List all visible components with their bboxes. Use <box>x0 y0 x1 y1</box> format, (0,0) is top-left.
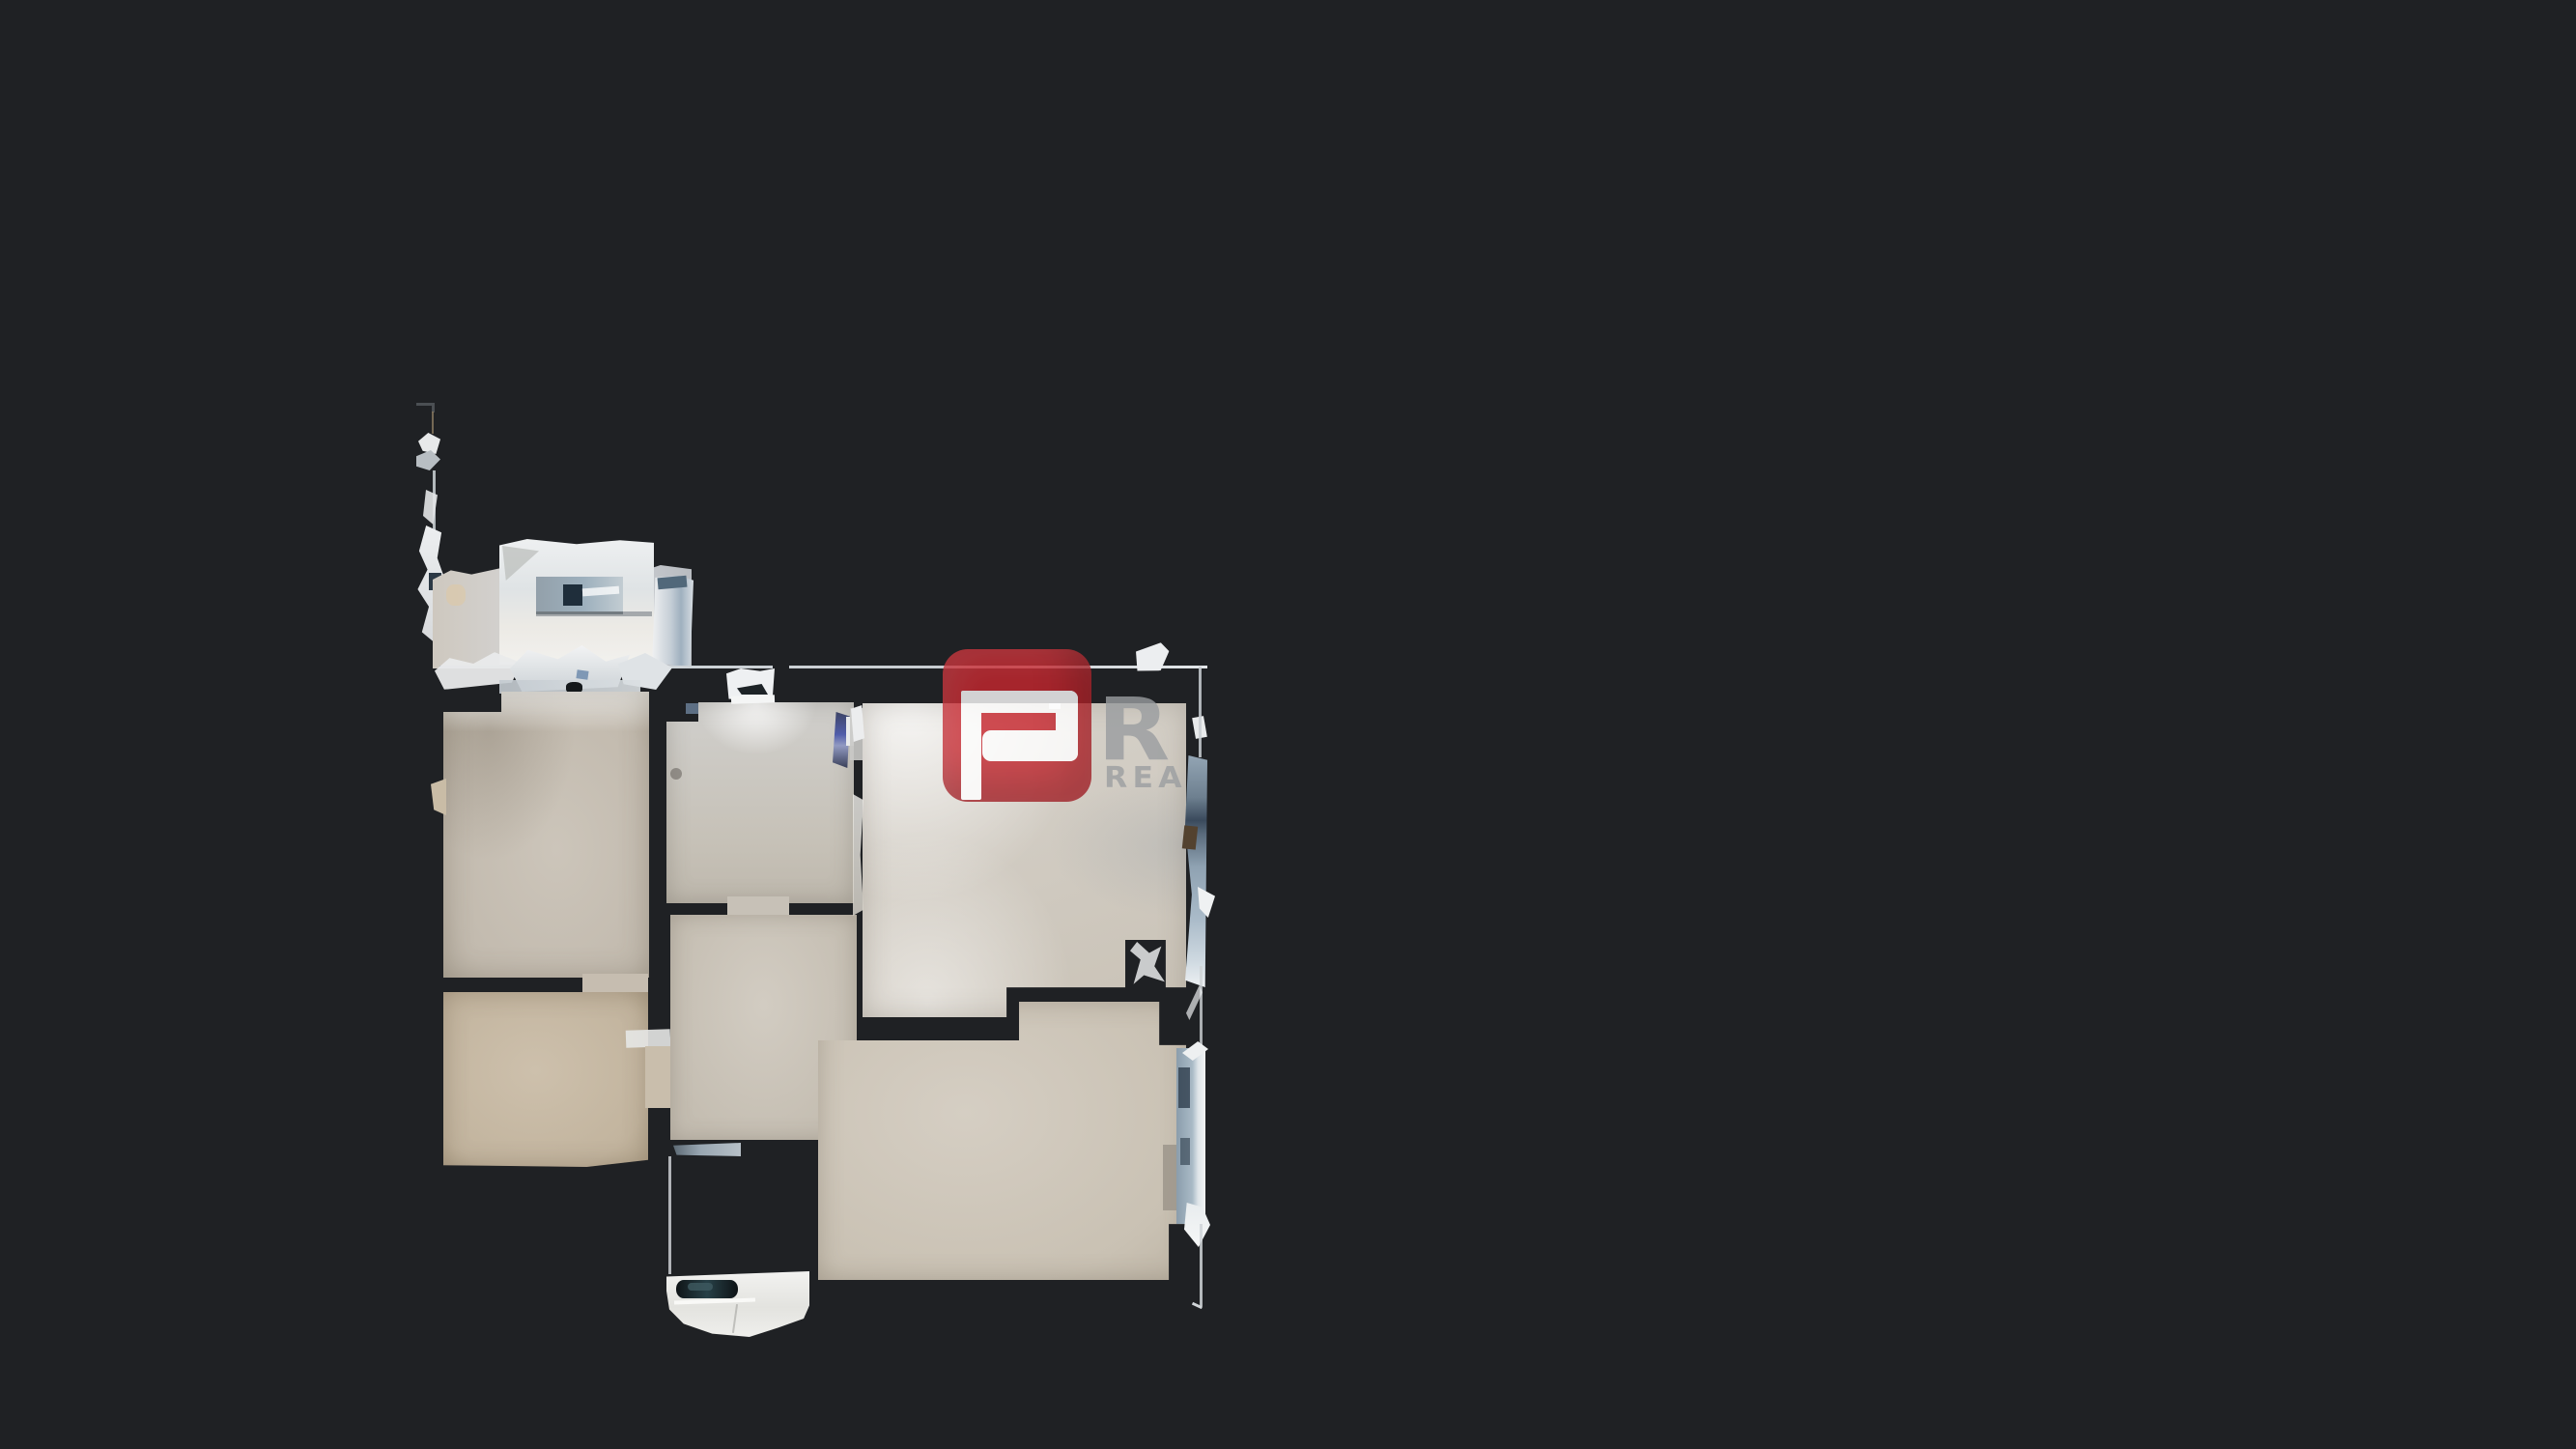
wall-edge-line <box>668 1156 671 1274</box>
doorway-gap <box>773 665 789 670</box>
room-floor-middle <box>666 702 854 903</box>
window-glass-dark <box>688 1283 713 1291</box>
door-frame-top-view <box>673 1143 741 1156</box>
floor-stain <box>670 768 682 780</box>
floor-fragment <box>431 779 446 815</box>
wall-edge-line <box>1199 667 1202 757</box>
scan-artifact-fragment <box>423 490 438 525</box>
window-sill <box>536 611 652 616</box>
window-glass-dark <box>563 584 582 606</box>
window-strip-living <box>1185 755 1207 987</box>
scan-artifact-line <box>432 412 434 434</box>
window-glass-dark <box>1180 1138 1190 1165</box>
wall-edge-line <box>1200 1224 1203 1306</box>
window-frame-fragment <box>1182 825 1198 849</box>
wall-edge-line <box>1200 966 1203 1050</box>
window-fragment <box>686 703 698 714</box>
wall-fragment <box>853 794 863 916</box>
room-floor-bottom-right <box>818 1002 1186 1280</box>
window-glass-dark <box>1178 1067 1190 1108</box>
door-threshold <box>731 695 775 704</box>
window-fragment <box>576 669 588 680</box>
door-threshold <box>626 1029 671 1048</box>
balcony-floor-patch <box>446 584 466 606</box>
scan-debris <box>1049 703 1061 709</box>
room-floor-top-left <box>443 692 649 978</box>
wall-fragment <box>1132 641 1172 674</box>
scan-artifact-fragment <box>416 450 440 470</box>
door-opening-floor <box>645 1046 672 1108</box>
window-frame-fragment <box>1184 1203 1210 1247</box>
balcony-side-wall <box>652 576 694 668</box>
door-opening-floor <box>582 974 648 994</box>
scan-debris <box>1130 942 1165 986</box>
floorplan-top-view[interactable] <box>0 0 2576 1449</box>
room-floor-bottom-left <box>443 992 648 1167</box>
viewer-stage: R REA <box>0 0 2576 1449</box>
